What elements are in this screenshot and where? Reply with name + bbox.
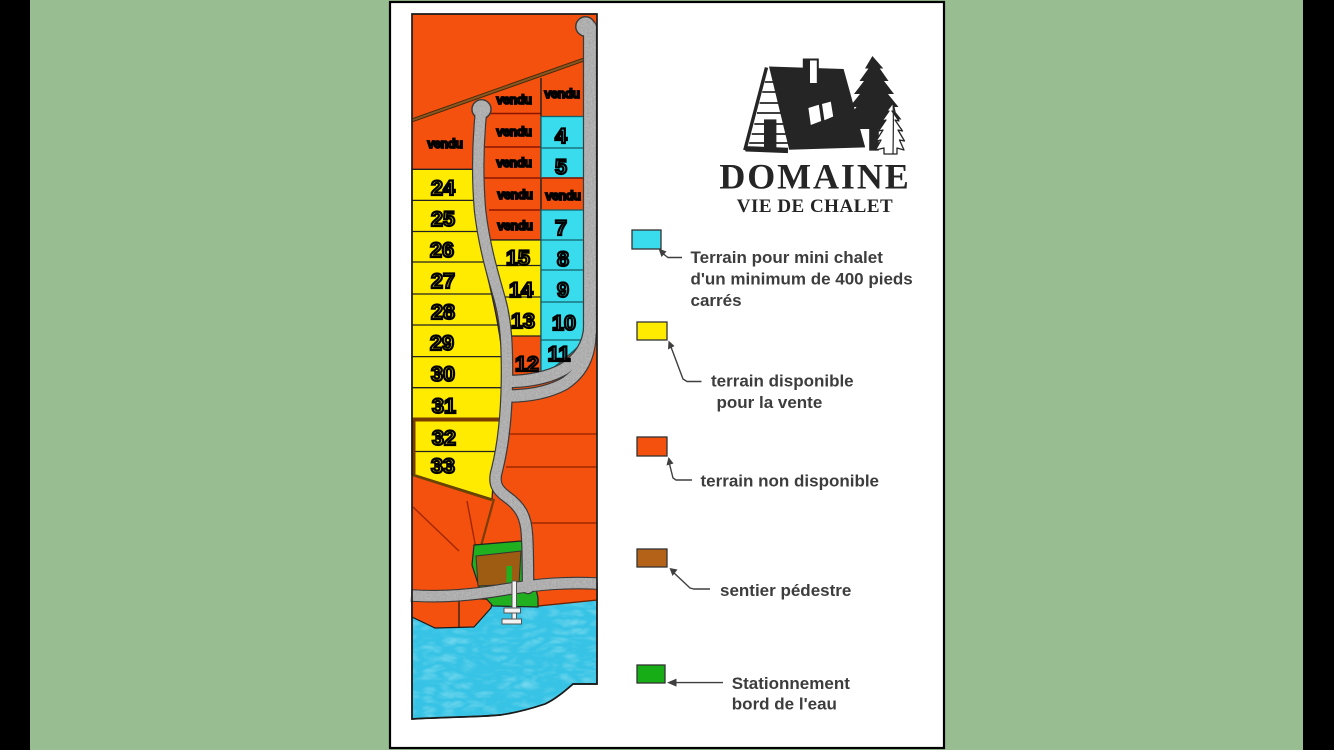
svg-text:31: 31 [432, 394, 456, 418]
svg-text:28: 28 [431, 300, 455, 324]
svg-text:4: 4 [555, 124, 567, 148]
svg-text:d'un minimum de 400 pieds: d'un minimum de 400 pieds [691, 270, 913, 289]
svg-text:vendu: vendu [497, 219, 532, 233]
svg-text:vendu: vendu [497, 188, 532, 202]
svg-text:vendu: vendu [496, 93, 531, 107]
svg-text:7: 7 [555, 216, 567, 240]
svg-text:pour la vente: pour la vente [717, 393, 823, 412]
svg-text:Terrain pour mini chalet: Terrain pour mini chalet [691, 248, 884, 267]
svg-text:Stationnement: Stationnement [732, 674, 850, 693]
svg-text:24: 24 [431, 176, 455, 200]
svg-text:terrain disponible: terrain disponible [711, 372, 854, 391]
svg-text:15: 15 [506, 246, 530, 270]
svg-text:bord de l'eau: bord de l'eau [732, 695, 837, 714]
svg-text:vendu: vendu [496, 156, 531, 170]
svg-text:vendu: vendu [496, 125, 531, 139]
svg-text:9: 9 [557, 278, 569, 302]
svg-text:VIE DE CHALET: VIE DE CHALET [737, 196, 893, 217]
svg-text:26: 26 [430, 238, 454, 262]
svg-text:11: 11 [548, 342, 571, 366]
svg-text:8: 8 [557, 247, 569, 271]
svg-text:14: 14 [509, 278, 533, 302]
svg-text:10: 10 [552, 311, 576, 335]
svg-text:30: 30 [431, 362, 455, 386]
svg-text:terrain non disponible: terrain non disponible [701, 472, 880, 491]
svg-text:29: 29 [430, 331, 454, 355]
svg-text:DOMAINE: DOMAINE [719, 157, 910, 197]
svg-text:vendu: vendu [427, 137, 462, 151]
svg-text:vendu: vendu [545, 189, 580, 203]
svg-text:carrés: carrés [691, 291, 742, 310]
svg-text:5: 5 [555, 155, 567, 179]
svg-text:12: 12 [515, 352, 539, 376]
svg-text:27: 27 [431, 269, 455, 293]
svg-text:sentier pédestre: sentier pédestre [720, 581, 851, 600]
svg-text:32: 32 [432, 426, 456, 450]
svg-text:25: 25 [431, 207, 455, 231]
svg-text:13: 13 [511, 309, 535, 333]
svg-text:vendu: vendu [544, 87, 579, 101]
svg-text:33: 33 [431, 454, 455, 478]
